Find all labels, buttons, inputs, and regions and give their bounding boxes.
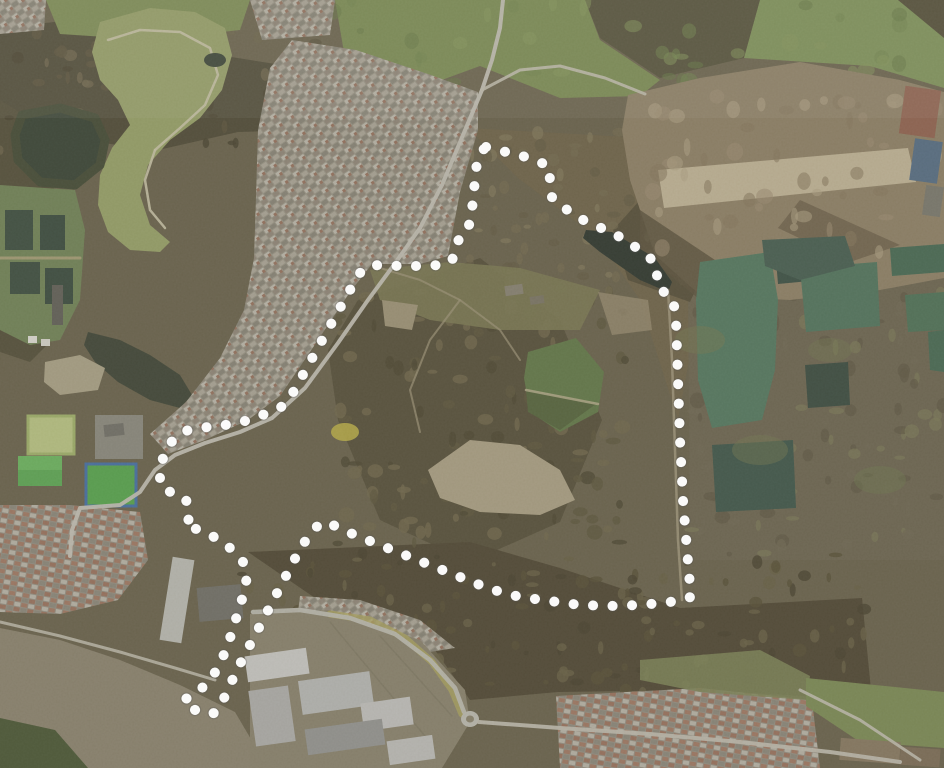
photo-grain-overlay <box>0 0 944 768</box>
aerial-photo-canvas <box>0 0 944 768</box>
aerial-photo-map <box>0 0 944 768</box>
